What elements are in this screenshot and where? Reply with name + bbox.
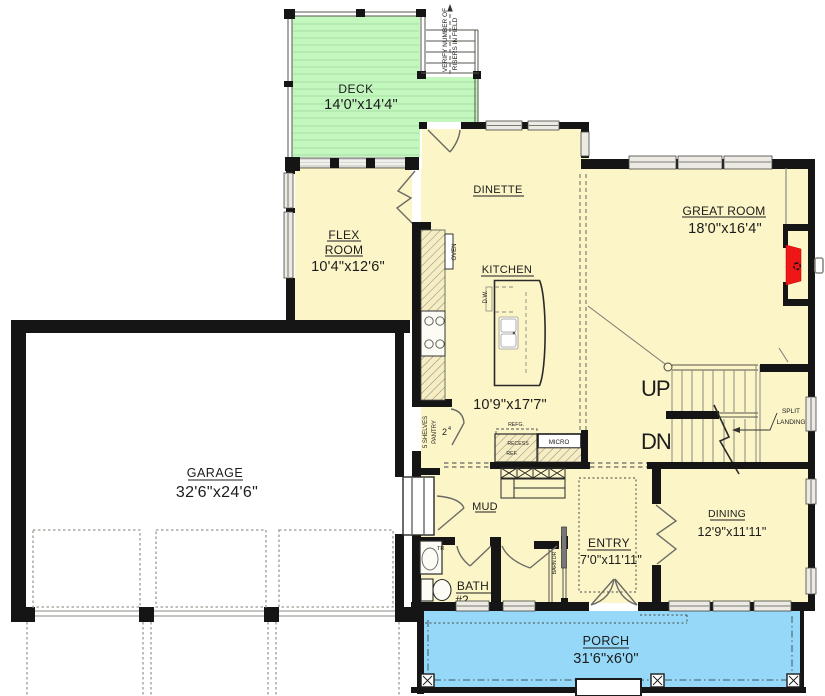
svg-text:D.W.: D.W. (483, 290, 489, 303)
svg-text:SPLIT: SPLIT (782, 408, 800, 415)
svg-text:MICRO: MICRO (549, 439, 570, 446)
svg-text:PANTRY: PANTRY (432, 420, 438, 444)
svg-text:ROOM: ROOM (325, 243, 364, 257)
svg-text:7'0"x11'11": 7'0"x11'11" (580, 553, 642, 567)
svg-text:BATH: BATH (457, 579, 489, 593)
svg-text:RISERS IN FIELD: RISERS IN FIELD (452, 17, 459, 70)
svg-text:MUD: MUD (472, 501, 498, 513)
svg-text:PORCH: PORCH (583, 634, 630, 648)
svg-text:BARN DR: BARN DR (552, 551, 558, 574)
svg-text:UP: UP (641, 376, 670, 401)
svg-text:10'4"x12'6": 10'4"x12'6" (311, 259, 385, 275)
svg-text:GREAT ROOM: GREAT ROOM (683, 204, 766, 218)
svg-text:DINETTE: DINETTE (473, 184, 522, 196)
svg-text:DINING: DINING (708, 508, 746, 520)
svg-text:14'0"x14'4": 14'0"x14'4" (324, 97, 398, 113)
svg-text:4: 4 (448, 426, 451, 432)
svg-text:2: 2 (442, 427, 447, 437)
svg-text:GARAGE: GARAGE (187, 466, 244, 480)
svg-text:32'6"x24'6": 32'6"x24'6" (176, 484, 258, 501)
svg-text:RECESS: RECESS (507, 441, 529, 447)
svg-text:REF.: REF. (506, 451, 517, 457)
svg-text:DECK: DECK (338, 82, 373, 96)
svg-text:31'6"x6'0": 31'6"x6'0" (573, 651, 638, 667)
svg-text:10'9"x17'7": 10'9"x17'7" (473, 397, 547, 413)
svg-text:OVEN: OVEN (452, 243, 458, 260)
svg-text:DN: DN (641, 429, 671, 454)
svg-text:TR: TR (437, 546, 444, 552)
svg-text:FLEX: FLEX (328, 228, 359, 242)
svg-text:ENTRY: ENTRY (588, 536, 630, 550)
svg-text:12'9"x11'11": 12'9"x11'11" (697, 525, 766, 539)
svg-text:18'0"x16'4": 18'0"x16'4" (688, 221, 762, 237)
svg-text:LANDING: LANDING (777, 419, 806, 426)
svg-text:KITCHEN: KITCHEN (482, 264, 532, 276)
svg-text:VERIFY NUMBER OF: VERIFY NUMBER OF (442, 8, 449, 72)
svg-text:REFG.: REFG. (508, 422, 524, 428)
svg-text:5 SHELVES: 5 SHELVES (423, 416, 429, 448)
